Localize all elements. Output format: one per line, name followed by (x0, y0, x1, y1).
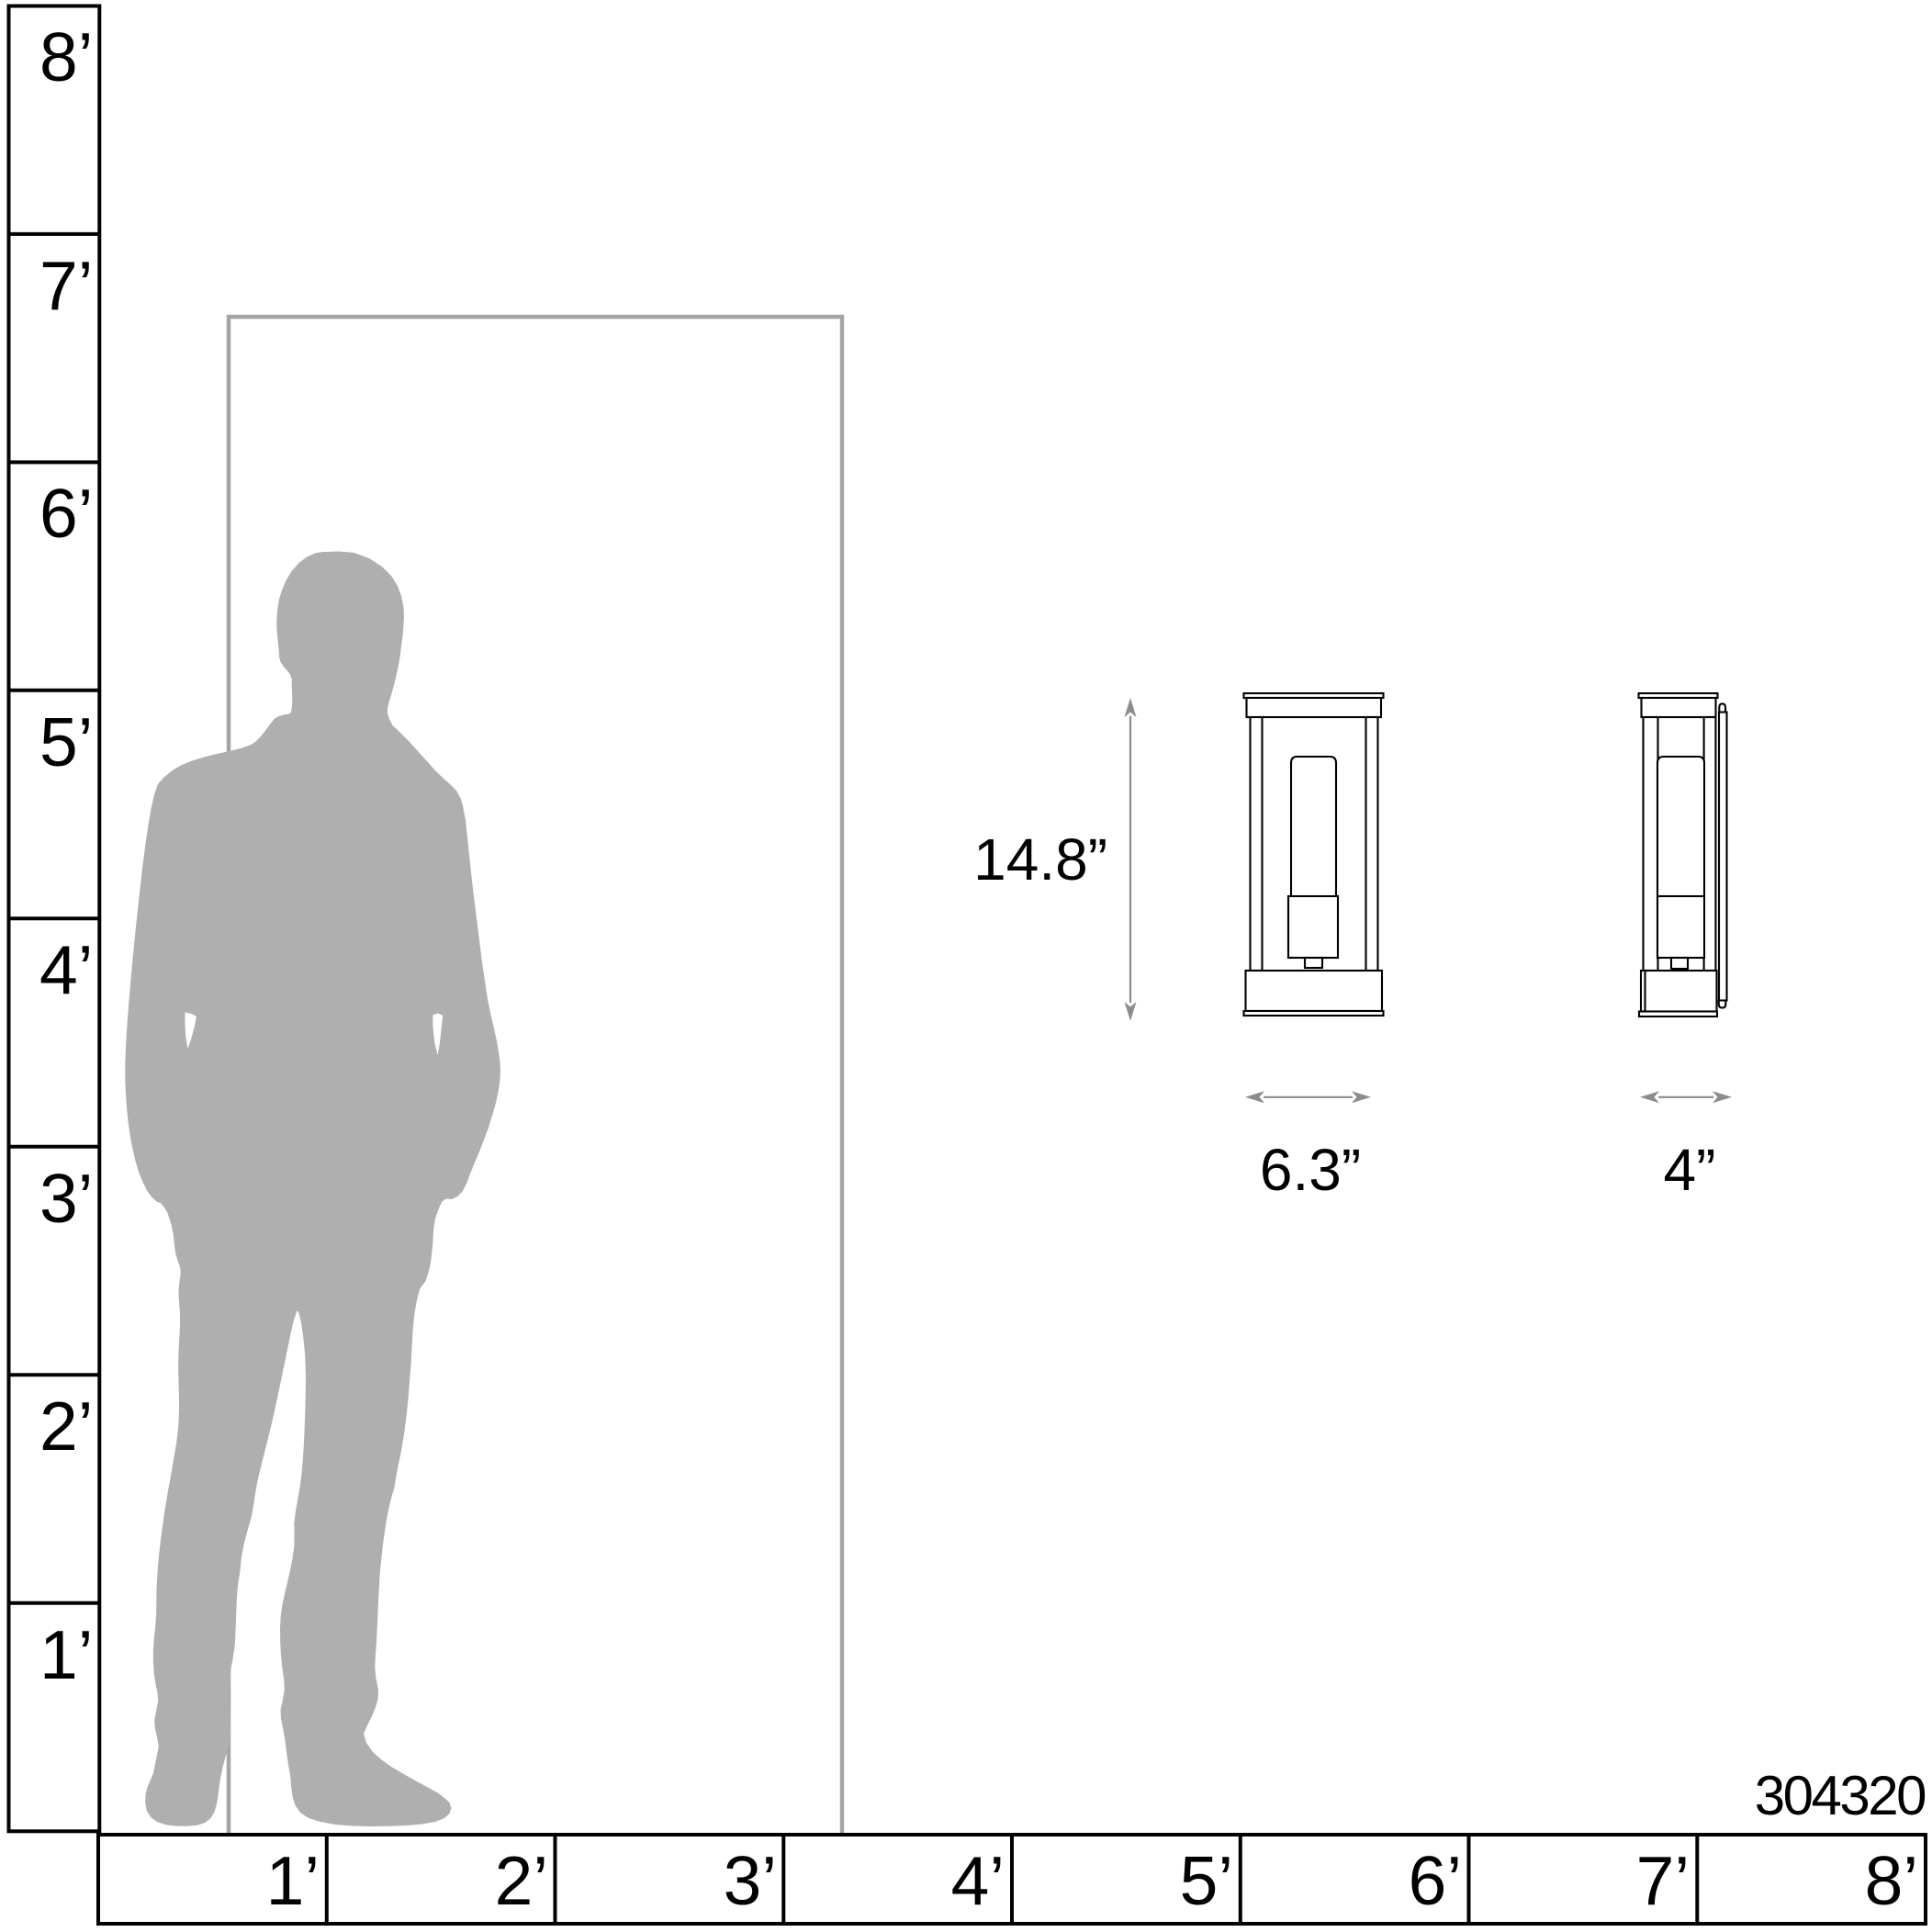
svg-text:2’: 2’ (495, 1842, 548, 1919)
svg-text:1’: 1’ (39, 1616, 93, 1693)
svg-text:1’: 1’ (266, 1842, 320, 1919)
svg-text:7’: 7’ (1636, 1842, 1690, 1919)
svg-text:304320: 304320 (1755, 1765, 1926, 1826)
svg-text:5’: 5’ (39, 703, 93, 781)
svg-text:4’: 4’ (951, 1842, 1005, 1919)
svg-text:4’: 4’ (39, 931, 93, 1008)
svg-text:8’: 8’ (1865, 1842, 1918, 1919)
svg-text:6.3”: 6.3” (1260, 1137, 1361, 1203)
svg-text:14.8”: 14.8” (973, 826, 1107, 893)
svg-text:7’: 7’ (39, 247, 93, 324)
svg-text:6’: 6’ (1409, 1842, 1462, 1919)
svg-text:3’: 3’ (724, 1842, 777, 1919)
svg-text:4”: 4” (1664, 1137, 1716, 1203)
svg-text:8’: 8’ (39, 18, 93, 95)
svg-text:5’: 5’ (1180, 1842, 1233, 1919)
svg-text:6’: 6’ (39, 475, 93, 552)
svg-text:3’: 3’ (39, 1160, 93, 1237)
svg-text:2’: 2’ (39, 1387, 93, 1465)
